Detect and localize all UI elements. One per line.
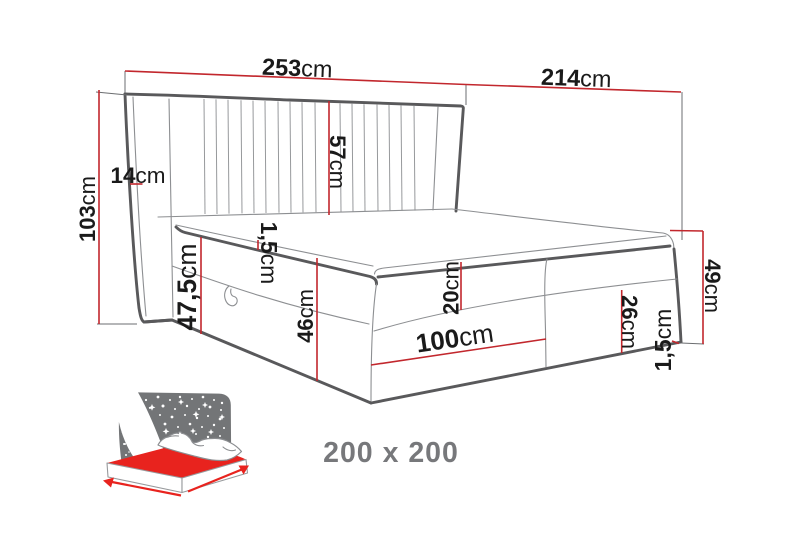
svg-text:57cm: 57cm: [325, 135, 350, 189]
svg-text:46cm: 46cm: [293, 289, 318, 343]
svg-text:49cm: 49cm: [700, 259, 725, 313]
svg-text:26cm: 26cm: [617, 295, 642, 349]
svg-text:47,5cm: 47,5cm: [172, 244, 202, 331]
svg-text:20cm: 20cm: [439, 261, 464, 315]
svg-text:14cm: 14cm: [110, 163, 165, 188]
svg-text:253cm: 253cm: [262, 54, 333, 83]
svg-text:200 x 200: 200 x 200: [323, 437, 459, 469]
svg-text:1,5cm: 1,5cm: [650, 309, 676, 372]
svg-text:214cm: 214cm: [541, 64, 612, 92]
svg-text:103cm: 103cm: [75, 176, 100, 242]
svg-text:1,5cm: 1,5cm: [256, 222, 282, 285]
